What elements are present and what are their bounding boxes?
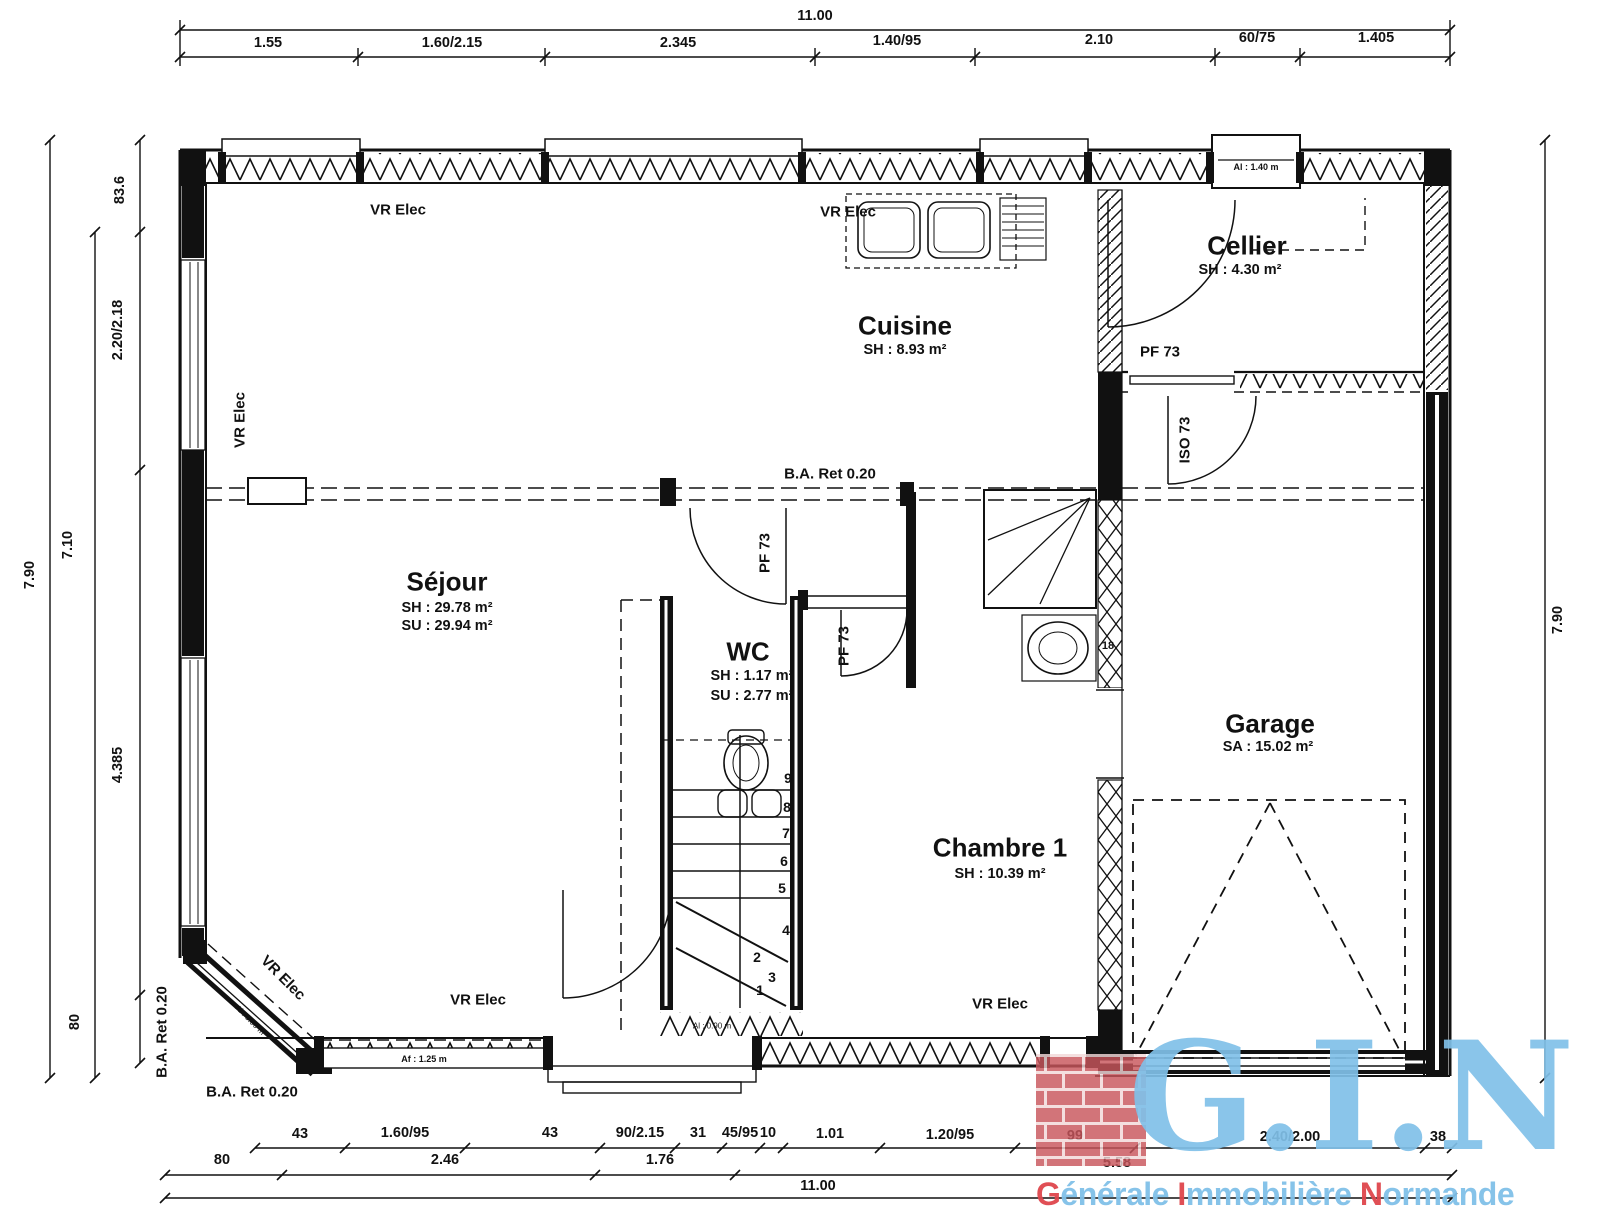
tagline-word-lead: N	[1360, 1176, 1383, 1212]
stair-step-number: 6	[780, 853, 788, 869]
dim-left-seg: 83.6	[112, 176, 128, 204]
dim-left-inner: 7.10	[60, 531, 76, 559]
gin-logo: G.I.N	[1128, 1022, 1577, 1172]
room-cellier-title: Cellier	[1207, 231, 1287, 262]
dim-left-seg: 2.20/2.18	[110, 300, 126, 360]
room-wc-area: SU : 2.77 m²	[711, 688, 794, 704]
room-garage-title: Garage	[1225, 709, 1315, 740]
stair-step-number: 8	[783, 799, 791, 815]
room-sejour-title: Séjour	[407, 567, 488, 598]
dim-top-seg: 1.55	[254, 35, 282, 51]
dim-bottom-seg: 45/95	[722, 1125, 758, 1141]
pf73-label: PF 73	[757, 533, 774, 573]
dim-bottom-seg: 2.46	[431, 1152, 459, 1168]
room-chambre1-title: Chambre 1	[933, 833, 1067, 864]
dim-bottom-seg: 1.01	[816, 1126, 844, 1142]
room-cuisine-title: Cuisine	[858, 311, 952, 342]
dim-bottom-seg: 1.60/95	[381, 1125, 429, 1141]
iso73-label: ISO 73	[1177, 417, 1194, 464]
room-sejour-area: SU : 29.94 m²	[401, 618, 492, 634]
dim-top-seg: 1.405	[1358, 30, 1394, 46]
interior-walls	[206, 190, 1424, 1054]
dim-top-seg: 60/75	[1239, 30, 1275, 46]
dim-bottom-seg: 80	[214, 1152, 230, 1168]
dim-bottom-seg: 1.20/95	[926, 1127, 974, 1143]
room-cuisine-area: SH : 8.93 m²	[864, 342, 947, 358]
ba-ret-label: B.A. Ret 0.20	[206, 1084, 298, 1101]
al090-label: Al : 0.90 m	[693, 1022, 731, 1031]
vr-elec-label: VR Elec	[232, 392, 249, 448]
vr-elec-label: VR Elec	[450, 992, 506, 1009]
tagline-word-lead: G	[1036, 1176, 1060, 1212]
dim-top-seg: 2.345	[660, 35, 696, 51]
dim-top-seg: 1.40/95	[873, 33, 921, 49]
tagline-word-rest: énérale	[1060, 1176, 1169, 1212]
stair-step-number: 7	[782, 825, 790, 841]
al140-label: Al : 1.40 m	[1233, 162, 1278, 172]
stair-step-number: 4	[782, 922, 790, 938]
dim-top-overall: 11.00	[797, 8, 833, 24]
tagline-word-rest: mmobilière	[1186, 1176, 1352, 1212]
dim-bottom-seg: 31	[690, 1125, 706, 1141]
pf73-label: PF 73	[836, 626, 853, 666]
stair-step-number: 3	[768, 969, 776, 985]
vr-elec-label: VR Elec	[972, 996, 1028, 1013]
room-garage-area: SA : 15.02 m²	[1223, 739, 1314, 755]
vr-elec-label: VR Elec	[820, 204, 876, 221]
dim-bottom-seg: 10	[760, 1125, 776, 1141]
ba-ret-label: B.A. Ret 0.20	[154, 986, 171, 1078]
dim-right-overall: 7.90	[1550, 606, 1566, 634]
dim-bottom-seg: 1.76	[646, 1152, 674, 1168]
stair-step-number: 2	[753, 949, 761, 965]
vr-elec-label: VR Elec	[370, 202, 426, 219]
stair-step-number: 1	[756, 982, 764, 998]
dim-top-seg: 1.60/2.15	[422, 35, 482, 51]
room-sejour-area: SH : 29.78 m²	[401, 600, 492, 616]
floor-plan: 11.00 1.55 1.60/2.15 2.345 1.40/95 2.10 …	[0, 0, 1600, 1222]
dim-left-overall: 7.90	[22, 561, 38, 589]
stairs-group	[662, 730, 790, 1008]
stair-step-number: 9	[784, 770, 792, 786]
room-wc-title: WC	[726, 637, 769, 668]
gin-tagline: Générale Immobilière Normande	[1036, 1176, 1514, 1213]
stair-step-number: 5	[778, 880, 786, 896]
dim-top-seg: 2.10	[1085, 32, 1113, 48]
af125-label: Af : 1.25 m	[401, 1054, 447, 1064]
tagline-word-rest: ormande	[1382, 1176, 1514, 1212]
dim-left-seg: 80	[67, 1014, 83, 1030]
room-chambre1-area: SH : 10.39 m²	[954, 866, 1045, 882]
dim-bottom-seg: 43	[542, 1125, 558, 1141]
room-cellier-area: SH : 4.30 m²	[1199, 262, 1282, 278]
wall-18-label: 18	[1102, 640, 1114, 652]
tagline-word-lead: I	[1177, 1176, 1185, 1212]
dim-bottom-seg: 90/2.15	[616, 1125, 664, 1141]
dim-left-seg: 4.385	[110, 747, 126, 783]
exterior-walls	[180, 135, 1450, 1093]
pf73-label: PF 73	[1140, 344, 1180, 361]
room-wc-area: SH : 1.17 m²	[711, 668, 794, 684]
ba-ret-label: B.A. Ret 0.20	[784, 466, 876, 483]
dim-bottom-seg: 43	[292, 1126, 308, 1142]
dim-bottom-overall: 11.00	[800, 1178, 836, 1194]
